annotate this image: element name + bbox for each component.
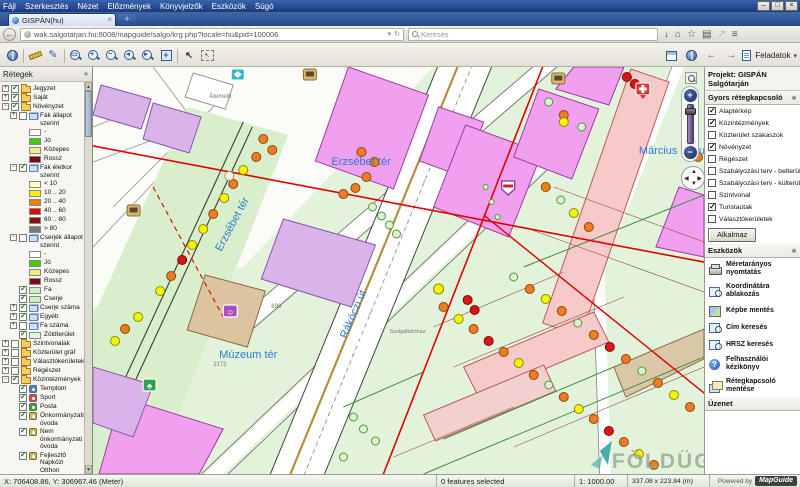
menu-item-5[interactable]: Eszközök bbox=[212, 2, 246, 11]
quick-switch-list: AlaptérképKözintézményekKözterület szaka… bbox=[705, 105, 800, 225]
layer-label: Fa száma bbox=[40, 322, 84, 330]
tool-item[interactable]: Koordinátára ablakozás bbox=[705, 280, 800, 302]
reload-icon[interactable]: ↻ bbox=[394, 30, 400, 38]
powered-by-label: Powered by bbox=[718, 478, 752, 485]
expand-icon[interactable]: + bbox=[10, 304, 17, 311]
share-icon[interactable]: ↗ bbox=[717, 29, 725, 40]
back-arrow-icon: ← bbox=[706, 50, 716, 61]
folder-icon bbox=[21, 86, 31, 93]
menu-item-1[interactable]: Szerkesztés bbox=[25, 2, 69, 11]
layer-label: Közepes bbox=[44, 146, 84, 154]
zoom-in-button[interactable]: + bbox=[85, 47, 103, 64]
layer-checkbox[interactable] bbox=[19, 112, 27, 120]
site-icon bbox=[24, 31, 31, 38]
pan-down-icon[interactable]: ▼ bbox=[691, 181, 697, 187]
star-icon[interactable]: ☆ bbox=[687, 29, 696, 40]
layer-row[interactable]: +Fa száma bbox=[2, 322, 84, 330]
layer-label: Posta bbox=[40, 403, 84, 411]
window-icon bbox=[666, 51, 677, 61]
layer-label: Fejlesztő Napközi Otthon bbox=[40, 452, 84, 475]
layer-label: Rossz bbox=[44, 277, 84, 285]
tools-list: Méretarányos nyomtatásKoordinátára ablak… bbox=[705, 258, 800, 397]
layer-row[interactable]: Posta bbox=[2, 403, 84, 411]
scroll-down-icon[interactable]: ▼ bbox=[85, 465, 92, 474]
layer-label: Régészet bbox=[33, 367, 84, 375]
layer-row[interactable]: −Közintézmények bbox=[2, 376, 84, 384]
layer-label: Növényzet bbox=[33, 103, 84, 111]
expand-icon[interactable]: + bbox=[10, 322, 17, 329]
collapse-icon[interactable]: − bbox=[2, 376, 9, 383]
poi-marker-icon bbox=[29, 385, 37, 393]
layer-row[interactable]: +Cserje száma bbox=[2, 304, 84, 312]
cursor-icon: ↖ bbox=[185, 50, 193, 61]
folder-icon bbox=[21, 341, 31, 348]
select-area-button[interactable]: ↖ bbox=[198, 47, 216, 64]
legend-swatch bbox=[29, 296, 41, 303]
layer-label: 20 .. 40 bbox=[44, 198, 84, 206]
layer-row[interactable]: > 80 bbox=[2, 225, 84, 233]
task-back-button[interactable]: ← bbox=[702, 47, 720, 64]
redline-button[interactable]: ✎ bbox=[44, 47, 62, 64]
layer-row[interactable]: −Növényzet bbox=[2, 103, 84, 111]
print-icon bbox=[709, 264, 722, 275]
legend-swatch bbox=[29, 251, 41, 258]
folder-icon bbox=[21, 104, 31, 111]
pan-right-icon[interactable]: ▶ bbox=[697, 176, 702, 182]
quick-switch-checkbox[interactable] bbox=[708, 167, 716, 175]
mapguide-badge: MapGuide bbox=[755, 476, 797, 486]
close-button[interactable]: × bbox=[785, 1, 798, 11]
park-icon[interactable]: ♣ bbox=[143, 379, 156, 391]
task-panel: Projekt: GISPÁN Salgótarján Gyors rétegk… bbox=[704, 67, 800, 474]
folder-icon bbox=[21, 359, 31, 366]
layers-icon bbox=[29, 305, 38, 312]
layer-row[interactable]: +Egyéb bbox=[2, 313, 84, 321]
layer-row[interactable]: Cserje bbox=[2, 295, 84, 303]
layer-row[interactable]: Közepes bbox=[2, 268, 84, 276]
navigation-bar: ← wak.salgotarjan.hu:8008/mapguide/salgo… bbox=[0, 26, 800, 43]
layer-row[interactable]: < 10 bbox=[2, 180, 84, 188]
menu-item-2[interactable]: Nézet bbox=[77, 2, 98, 11]
collapse-icon[interactable]: − bbox=[2, 103, 9, 110]
layer-row[interactable]: 20 .. 40 bbox=[2, 198, 84, 206]
task-forward-button[interactable]: → bbox=[722, 47, 740, 64]
project-title: Projekt: GISPÁN Salgótarján bbox=[705, 67, 800, 91]
maximize-button[interactable]: □ bbox=[771, 1, 784, 11]
layers-header: Rétegek ∗ bbox=[0, 67, 92, 82]
layer-checkbox[interactable] bbox=[19, 313, 27, 321]
expand-icon[interactable]: + bbox=[10, 112, 17, 119]
find-icon bbox=[709, 286, 722, 297]
zoom-in-control[interactable]: + bbox=[684, 89, 697, 102]
map-viewport[interactable]: ☺ ♣ Erzsébet tér Erzsébet tér Múzeum tér… bbox=[93, 67, 704, 474]
quick-switch-checkbox[interactable] bbox=[708, 155, 716, 163]
quick-switch-label: Szabályozási terv - külterület bbox=[719, 180, 800, 187]
layers-collapse-icon[interactable]: ∗ bbox=[83, 70, 89, 78]
layer-tree-scrollbar[interactable]: ▲ ▼ bbox=[84, 82, 92, 474]
zoom-slider[interactable] bbox=[687, 104, 694, 144]
tasks-icon bbox=[742, 50, 751, 61]
zoom-rectangle-button[interactable]: ▭ bbox=[67, 47, 85, 64]
pan-control[interactable]: ▲ ▼ ◀ ▶ bbox=[681, 166, 704, 190]
map-globe-button[interactable] bbox=[682, 47, 700, 64]
poi-marker-icon bbox=[29, 452, 37, 460]
quick-switch-label: Alaptérkép bbox=[719, 108, 752, 115]
map-canvas[interactable]: ☺ ♣ Erzsébet tér Erzsébet tér Múzeum tér… bbox=[93, 67, 704, 474]
selection-status: 0 features selected bbox=[437, 475, 575, 487]
tools-header: Eszközök ∗ bbox=[705, 244, 800, 258]
quick-switch-checkbox[interactable] bbox=[708, 131, 716, 139]
quick-switch-header: Gyors rétegkapcsoló ∗ bbox=[705, 91, 800, 105]
tasks-label[interactable]: Feladatok bbox=[755, 51, 790, 60]
expand-icon[interactable]: + bbox=[2, 367, 9, 374]
layer-label: Szintvonalak bbox=[33, 340, 84, 348]
quick-switch-row[interactable]: Választókerületek bbox=[705, 213, 800, 225]
tool-label: Méretarányos nyomtatás bbox=[726, 261, 798, 277]
legend-swatch bbox=[29, 269, 41, 276]
place-label: Múzeum tér bbox=[219, 349, 277, 361]
zoom-previous-button[interactable]: ◂ bbox=[121, 47, 139, 64]
tool-item[interactable]: Felhasználói kézikönyv bbox=[705, 353, 800, 375]
search-icon bbox=[412, 31, 418, 37]
legend-swatch bbox=[29, 217, 41, 224]
layer-label: Zöldterület bbox=[44, 331, 84, 339]
find-icon bbox=[709, 339, 722, 350]
collapse-icon[interactable]: − bbox=[10, 164, 17, 171]
powered-by: Powered by MapGuide bbox=[710, 475, 800, 487]
expand-icon[interactable]: + bbox=[2, 94, 9, 101]
scale-readout: 1: 1000.00 bbox=[575, 475, 628, 487]
expand-icon[interactable]: + bbox=[2, 340, 9, 347]
poi-marker-icon bbox=[29, 403, 37, 411]
menu-bar: FájlSzerkesztésNézetElőzményekKönyvjelző… bbox=[0, 0, 800, 12]
quick-switch-row[interactable]: Turistautak bbox=[705, 201, 800, 213]
poi-marker-icon bbox=[29, 412, 37, 420]
menu-item-3[interactable]: Előzmények bbox=[107, 2, 151, 11]
scroll-thumb[interactable] bbox=[85, 91, 92, 137]
layer-label: > 80 bbox=[44, 225, 84, 233]
zoom-tool-icon[interactable] bbox=[685, 72, 697, 84]
layer-checkbox[interactable] bbox=[19, 428, 27, 436]
layer-label: Fa bbox=[44, 286, 84, 294]
layer-label: 60 .. 80 bbox=[44, 216, 84, 224]
layer-label: - bbox=[44, 128, 84, 136]
layer-row[interactable]: Nem önkormányzati óvoda bbox=[2, 428, 84, 451]
tool-item[interactable]: Képbe mentés bbox=[705, 302, 800, 319]
tool-label: HRSZ keresés bbox=[726, 341, 773, 349]
select-button[interactable]: ↖ bbox=[180, 47, 198, 64]
layer-row[interactable]: Sport bbox=[2, 394, 84, 402]
layer-label: Sport bbox=[40, 394, 84, 402]
image-icon bbox=[709, 305, 722, 316]
layer-row[interactable]: Zöldterület bbox=[2, 331, 84, 339]
layer-label: Választókerületek bbox=[33, 358, 84, 366]
status-bar: X: 706408.86, Y: 306967.46 (Meter) 0 fea… bbox=[0, 474, 800, 487]
layer-label: Egyéb bbox=[40, 313, 84, 321]
zoom-out-icon: − bbox=[106, 50, 118, 62]
measure-button[interactable] bbox=[26, 47, 44, 64]
place-label: Erzsébet tér bbox=[331, 156, 391, 168]
layer-row[interactable]: 40 .. 60 bbox=[2, 207, 84, 215]
pan-left-icon[interactable]: ◀ bbox=[684, 176, 689, 182]
post-icon[interactable] bbox=[231, 69, 244, 80]
menu-item-0[interactable]: Fájl bbox=[3, 2, 16, 11]
find-icon bbox=[709, 322, 722, 333]
zoom-out-control[interactable]: − bbox=[684, 146, 697, 159]
layer-label: Jegyzet bbox=[33, 85, 84, 93]
fit-extent-icon: + bbox=[161, 50, 172, 61]
layer-row[interactable]: Jó bbox=[2, 259, 84, 267]
tools-collapse-icon[interactable]: ∗ bbox=[791, 247, 797, 255]
browser-window: FájlSzerkesztésNézetElőzményekKönyvjelző… bbox=[0, 0, 800, 487]
quick-switch-label: Régészet bbox=[719, 156, 748, 163]
quick-switch-checkbox[interactable] bbox=[708, 179, 716, 187]
layers-icon bbox=[29, 314, 38, 321]
legend-swatch bbox=[29, 181, 41, 188]
legend-swatch bbox=[29, 278, 41, 285]
help-icon bbox=[709, 359, 722, 370]
pan-up-icon[interactable]: ▲ bbox=[691, 169, 697, 175]
expand-icon[interactable]: + bbox=[10, 313, 17, 320]
zoom-next-button[interactable]: ▸ bbox=[139, 47, 157, 64]
layer-row[interactable]: - bbox=[2, 128, 84, 136]
layers-title: Rétegek bbox=[3, 70, 33, 79]
url-dropdown-icon[interactable]: ▾ bbox=[388, 30, 392, 38]
legend-swatch bbox=[29, 147, 41, 154]
quick-switch-checkbox[interactable] bbox=[708, 203, 716, 211]
layer-tree[interactable]: +Jegyzet+Saját−Növényzet+Fák állapot sze… bbox=[0, 82, 84, 474]
layer-row[interactable]: Rossz bbox=[2, 277, 84, 285]
tab-bar: GISPÁN(hu) × + bbox=[0, 12, 800, 26]
quick-switch-title: Gyors rétegkapcsoló bbox=[708, 93, 783, 102]
home-icon[interactable]: ⌂ bbox=[675, 29, 681, 40]
svg-text:Átemelő: Átemelő bbox=[209, 93, 232, 100]
tool-label: Cím keresés bbox=[726, 324, 767, 332]
quick-switch-checkbox[interactable] bbox=[708, 107, 716, 115]
legend-swatch bbox=[29, 287, 41, 294]
layer-row[interactable]: +Fák állapot szerint bbox=[2, 112, 84, 127]
layer-row[interactable]: +Választókerületek bbox=[2, 358, 84, 366]
zoom-previous-icon: ◂ bbox=[124, 50, 136, 62]
quick-switch-collapse-icon[interactable]: ∗ bbox=[791, 94, 797, 102]
layer-checkbox[interactable] bbox=[11, 103, 19, 111]
minimize-button[interactable]: – bbox=[757, 1, 770, 11]
search-input[interactable]: Keresés bbox=[408, 28, 658, 41]
layer-label: Fák életkor szerint bbox=[40, 164, 84, 179]
tool-label: Képbe mentés bbox=[726, 307, 774, 315]
url-text: wak.salgotarjan.hu:8008/mapguide/salgo/k… bbox=[34, 30, 385, 39]
folder-icon bbox=[21, 350, 31, 357]
layer-row[interactable]: Önkormányzati óvoda bbox=[2, 412, 84, 427]
svg-text:Szolgáltatóház: Szolgáltatóház bbox=[389, 329, 425, 335]
legend-swatch bbox=[29, 199, 41, 206]
layer-row[interactable]: Rossz bbox=[2, 155, 84, 163]
globe-icon bbox=[7, 50, 18, 61]
initial-view-button[interactable]: + bbox=[157, 47, 175, 64]
layer-checkbox[interactable] bbox=[19, 452, 27, 460]
layer-label: Jó bbox=[44, 137, 84, 145]
layer-row[interactable]: Közepes bbox=[2, 146, 84, 154]
legend-swatch bbox=[29, 226, 41, 233]
search-placeholder: Keresés bbox=[421, 30, 449, 39]
layer-checkbox[interactable] bbox=[11, 358, 19, 366]
layer-row[interactable]: - bbox=[2, 250, 84, 258]
zoom-in-icon: + bbox=[88, 50, 100, 62]
quick-switch-label: Növényzet bbox=[719, 144, 751, 151]
new-tab-button[interactable]: + bbox=[118, 14, 136, 25]
layer-label: Közepes bbox=[44, 268, 84, 276]
zoom-next-icon: ▸ bbox=[142, 50, 154, 62]
extent-readout: 337.08 x 223.84 (m) bbox=[628, 475, 710, 487]
quick-switch-label: Választókerületek bbox=[719, 216, 773, 223]
apply-button[interactable]: Alkalmaz bbox=[708, 228, 756, 242]
quick-switch-row[interactable]: Alaptérkép bbox=[705, 105, 800, 117]
menu-item-4[interactable]: Könyvjelzők bbox=[160, 2, 203, 11]
layer-label: Önkormányzati óvoda bbox=[40, 412, 84, 427]
zoom-slider-handle[interactable] bbox=[685, 108, 696, 115]
legend-swatch bbox=[29, 260, 41, 267]
window-tool-button[interactable] bbox=[662, 47, 680, 64]
download-icon[interactable]: ↓ bbox=[664, 29, 669, 40]
zoom-rectangle-icon: ▭ bbox=[70, 50, 82, 62]
layer-label: Cserje száma bbox=[40, 304, 84, 312]
svg-text:690: 690 bbox=[271, 304, 282, 310]
quick-switch-row[interactable]: Szintvonal bbox=[705, 189, 800, 201]
quick-switch-row[interactable]: Közterület szakaszok bbox=[705, 129, 800, 141]
legend-swatch bbox=[29, 190, 41, 197]
bookmarks-icon[interactable]: ▤ bbox=[702, 29, 711, 40]
folder-icon bbox=[21, 95, 31, 102]
quick-switch-label: Közintézmények bbox=[719, 120, 769, 127]
layer-label: Templom bbox=[40, 385, 84, 393]
menu-item-6[interactable]: Súgó bbox=[255, 2, 274, 11]
layers-icon bbox=[29, 235, 38, 242]
layer-checkbox[interactable] bbox=[11, 340, 19, 348]
quick-switch-row[interactable]: Szabályozási terv - külterület bbox=[705, 177, 800, 189]
tool-item[interactable]: Rétegkapcsoló mentése bbox=[705, 375, 800, 397]
expand-icon[interactable]: + bbox=[2, 85, 9, 92]
zoom-out-button[interactable]: − bbox=[103, 47, 121, 64]
layer-checkbox[interactable] bbox=[11, 349, 19, 357]
tool-label: Felhasználói kézikönyv bbox=[726, 356, 798, 372]
layer-label: Rossz bbox=[44, 155, 84, 163]
message-title: Üzenet bbox=[708, 399, 733, 408]
layer-label: Közterület gráf bbox=[33, 349, 84, 357]
layer-row[interactable]: 60 .. 80 bbox=[2, 216, 84, 224]
forward-arrow-icon: → bbox=[726, 50, 736, 61]
layer-row[interactable]: −Fák életkor szerint bbox=[2, 164, 84, 179]
menu-icon[interactable]: ≡ bbox=[732, 29, 738, 40]
layer-checkbox[interactable] bbox=[19, 164, 27, 172]
layer-row[interactable]: Fejlesztő Napközi Otthon bbox=[2, 452, 84, 475]
layer-checkbox[interactable] bbox=[11, 376, 19, 384]
layer-row[interactable]: 10 .. 20 bbox=[2, 189, 84, 197]
layers-icon bbox=[709, 381, 722, 392]
legend-swatch bbox=[29, 138, 41, 145]
tab-title: GISPÁN(hu) bbox=[22, 16, 104, 25]
layer-label: - bbox=[44, 250, 84, 258]
layer-row[interactable]: −Cserjék állapot szerint bbox=[2, 234, 84, 249]
layer-label: Közintézmények bbox=[33, 376, 84, 384]
quick-switch-checkbox[interactable] bbox=[708, 191, 716, 199]
quick-switch-checkbox[interactable] bbox=[708, 119, 716, 127]
map-navigation-control[interactable]: + − ▲ ▼ ◀ ▶ bbox=[681, 72, 701, 190]
legend-swatch bbox=[29, 208, 41, 215]
expand-icon[interactable]: + bbox=[2, 358, 9, 365]
map-toolbar: ✎ ▭ + − ◂ ▸ + ↖ ↖ ← → Feladatok ▾ bbox=[0, 43, 800, 67]
quick-switch-checkbox[interactable] bbox=[708, 215, 716, 223]
legend-swatch bbox=[29, 129, 41, 136]
tasks-dropdown-icon[interactable]: ▾ bbox=[793, 52, 797, 60]
print-button[interactable] bbox=[3, 47, 21, 64]
culture-icon[interactable]: ☺ bbox=[223, 305, 237, 317]
quick-switch-row[interactable]: Közintézmények bbox=[705, 117, 800, 129]
svg-text:♣: ♣ bbox=[147, 382, 153, 391]
layer-label: Saját bbox=[33, 94, 84, 102]
poi-marker-icon bbox=[29, 428, 37, 436]
layer-checkbox[interactable] bbox=[19, 412, 27, 420]
tools-title: Eszközök bbox=[708, 246, 742, 255]
layer-row[interactable]: +Közterület gráf bbox=[2, 349, 84, 357]
ruler-icon bbox=[28, 51, 42, 60]
scroll-up-icon[interactable]: ▲ bbox=[85, 82, 92, 91]
layer-checkbox[interactable] bbox=[19, 234, 27, 242]
layers-icon bbox=[29, 113, 38, 120]
quick-switch-row[interactable]: Szabályozási terv - belterület bbox=[705, 165, 800, 177]
layer-row[interactable]: +Szintvonalak bbox=[2, 340, 84, 348]
layer-label: Fák állapot szerint bbox=[40, 112, 84, 127]
layer-row[interactable]: Fa bbox=[2, 286, 84, 294]
url-bar[interactable]: wak.salgotarjan.hu:8008/mapguide/salgo/k… bbox=[20, 28, 404, 41]
quick-switch-label: Szintvonal bbox=[719, 192, 750, 199]
folder-icon bbox=[21, 368, 31, 375]
layer-row[interactable]: Jó bbox=[2, 137, 84, 145]
layer-label: Cserje bbox=[44, 295, 84, 303]
quick-switch-row[interactable]: Növényzet bbox=[705, 141, 800, 153]
svg-text:FÖLDÜGY: FÖLDÜGY bbox=[612, 450, 704, 473]
expand-icon[interactable]: + bbox=[2, 349, 9, 356]
tool-item[interactable]: Méretarányos nyomtatás bbox=[705, 258, 800, 280]
quick-switch-label: Szabályozási terv - belterület bbox=[719, 168, 800, 175]
layer-row[interactable]: Templom bbox=[2, 385, 84, 393]
tab-gispan[interactable]: GISPÁN(hu) × bbox=[8, 13, 116, 26]
layer-checkbox[interactable] bbox=[19, 331, 27, 339]
layer-label: Cserjék állapot szerint bbox=[40, 234, 84, 249]
layers-icon bbox=[29, 323, 38, 330]
quick-switch-checkbox[interactable] bbox=[708, 143, 716, 151]
tool-item[interactable]: Cím keresés bbox=[705, 319, 800, 336]
back-button[interactable]: ← bbox=[3, 28, 16, 41]
layer-label: Nem önkormányzati óvoda bbox=[40, 428, 84, 451]
quick-switch-label: Turistautak bbox=[719, 204, 752, 211]
coordinates-readout: X: 706408.86, Y: 306967.46 (Meter) bbox=[0, 475, 437, 487]
pencil-icon: ✎ bbox=[48, 50, 57, 61]
tab-close-icon[interactable]: × bbox=[107, 16, 112, 24]
quick-switch-row[interactable]: Régészet bbox=[705, 153, 800, 165]
tool-label: Rétegkapcsoló mentése bbox=[726, 378, 798, 394]
layers-sidebar: Rétegek ∗ +Jegyzet+Saját−Növényzet+Fák á… bbox=[0, 67, 93, 474]
tool-item[interactable]: HRSZ keresés bbox=[705, 336, 800, 353]
svg-text:2172: 2172 bbox=[213, 362, 227, 368]
layer-label: 10 .. 20 bbox=[44, 189, 84, 197]
quick-switch-label: Közterület szakaszok bbox=[719, 132, 783, 139]
legend-swatch bbox=[29, 156, 41, 163]
message-header: Üzenet bbox=[705, 397, 800, 411]
globe-icon bbox=[686, 50, 697, 61]
layer-label: Jó bbox=[44, 259, 84, 267]
collapse-icon[interactable]: − bbox=[10, 234, 17, 241]
legend-swatch bbox=[29, 332, 41, 339]
